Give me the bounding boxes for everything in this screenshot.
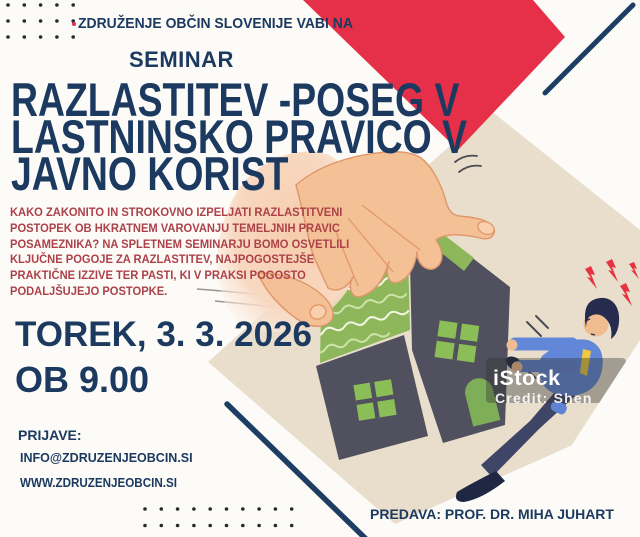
svg-text:Credit: Shen: Credit: Shen <box>495 390 593 406</box>
svg-text:iStock: iStock <box>493 366 561 390</box>
